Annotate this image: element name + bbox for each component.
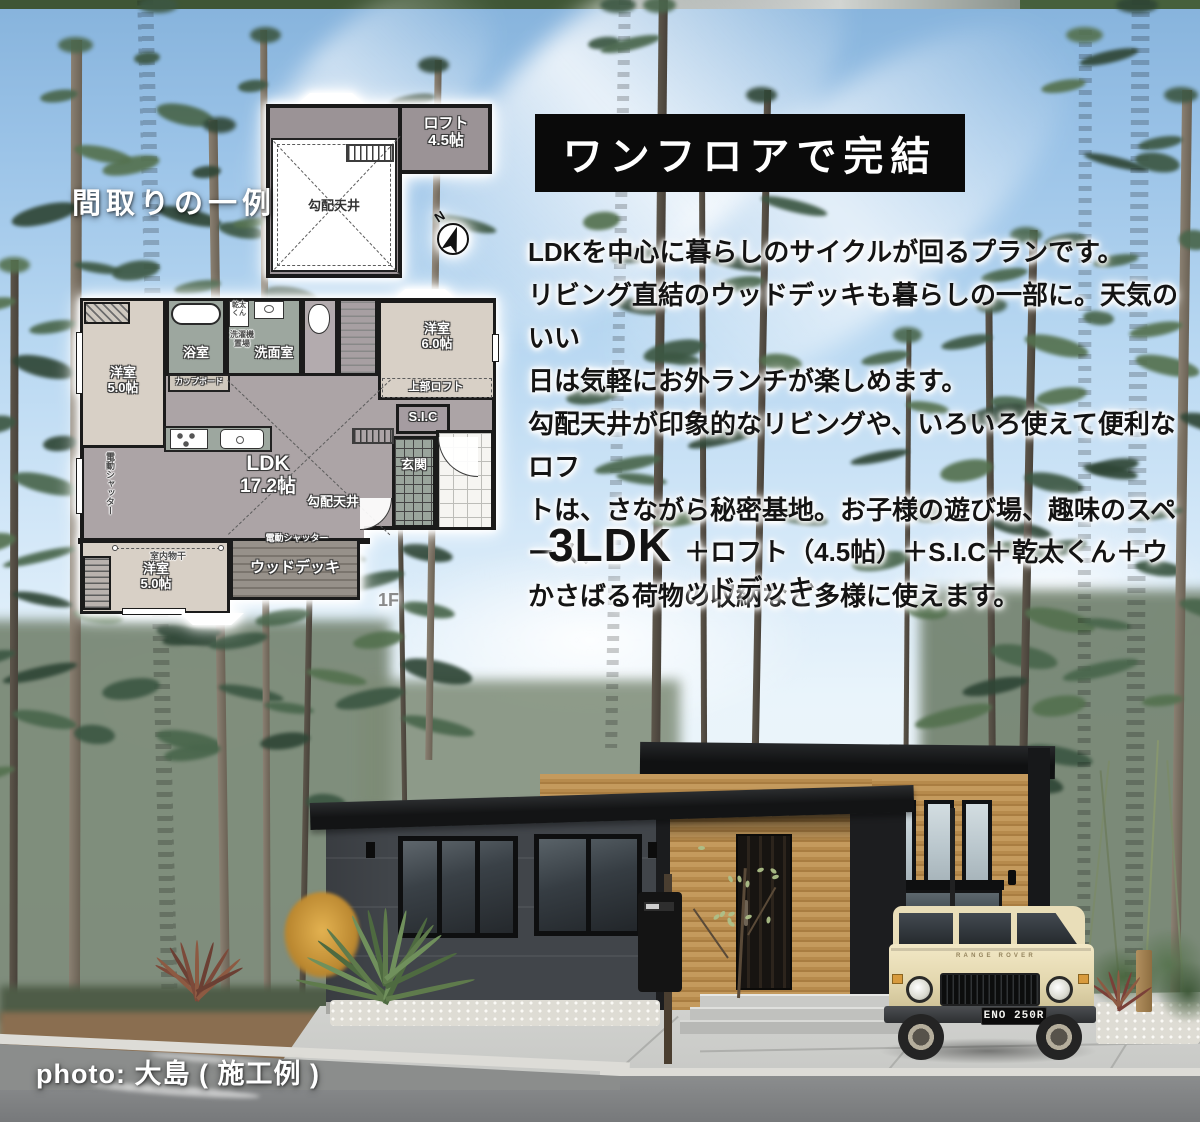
upper-loft-label: 上部ロフト xyxy=(384,381,488,393)
window-symbol xyxy=(76,332,83,394)
spec-ldk: 3LDK xyxy=(548,518,672,572)
spec-extras: ＋ロフト（4.5帖）＋S.I.C＋乾太くん＋ウッドデッキ xyxy=(684,532,1188,606)
headline-text: ワンフロアで完結 xyxy=(563,124,938,182)
bedroom-b-label: 洋室6.0帖 xyxy=(392,322,482,351)
bedroom-c-label: 洋室5.0帖 xyxy=(116,562,196,591)
entrance xyxy=(392,436,436,528)
description-line: 日は気軽にお外ランチが楽しめます。 xyxy=(528,360,1178,403)
flyer-poster: RANGE ROVER ENO 250R ロフト4.5帖 勾配天井 N xyxy=(0,0,1200,1122)
ldk-ladder-icon xyxy=(352,428,394,444)
indoor-drying-line xyxy=(116,548,220,549)
washroom-label: 洗面室 xyxy=(246,346,302,361)
loft-label: ロフト4.5帖 xyxy=(402,116,490,150)
wood-deck-label: ウッドデッキ xyxy=(238,560,352,577)
window-symbol xyxy=(122,608,186,615)
shutter-label-left: 電動シャッター xyxy=(100,452,114,548)
loft-ceiling-label: 勾配天井 xyxy=(291,199,377,214)
bathroom-label: 浴室 xyxy=(168,346,224,361)
roof-vent-icon xyxy=(180,613,244,625)
vanity-bowl-icon xyxy=(264,305,274,313)
drying-hook-icon xyxy=(218,545,224,551)
stove-icon xyxy=(170,429,208,449)
closet-strip xyxy=(338,298,378,376)
indoor-drying-label: 室内物干 xyxy=(126,551,210,561)
description-line: 勾配天井が印象的なリビングや、いろいろ使えて便利なロフ xyxy=(528,403,1178,489)
floor-1f-label: 1F xyxy=(378,590,418,610)
closet-hatch xyxy=(83,556,111,610)
bathtub-icon xyxy=(171,303,221,325)
window-symbol xyxy=(492,334,499,362)
bedroom-a-label: 洋室5.0帖 xyxy=(86,366,160,395)
closet-hatch xyxy=(84,302,130,324)
spec-line: 3LDK ＋ロフト（4.5帖）＋S.I.C＋乾太くん＋ウッドデッキ xyxy=(548,518,1188,606)
drying-hook-icon xyxy=(112,545,118,551)
photo-credit: photo: 大島 ( 施工例 ) xyxy=(36,1052,320,1091)
window-symbol xyxy=(76,458,83,514)
entrance-label: 玄関 xyxy=(393,458,435,473)
sink-drain-icon xyxy=(236,436,244,444)
toilet-icon xyxy=(308,304,330,334)
headline-banner: ワンフロアで完結 xyxy=(535,114,965,192)
sic-label: S.I.C xyxy=(397,410,449,425)
deck-shutter-label: 電動シャッター xyxy=(242,533,352,543)
cupboard-label: カップボード xyxy=(168,378,230,387)
plan-example-title: 間取りの一例 xyxy=(72,180,276,222)
loft-ladder-icon xyxy=(346,144,394,162)
dryer-label: 乾太くん xyxy=(229,302,249,317)
description-line: LDKを中心に暮らしのサイクルが回るプランです。 xyxy=(528,231,1178,274)
description-line: リビング直結のウッドデッキも暮らしの一部に。天気のいい xyxy=(528,274,1178,360)
